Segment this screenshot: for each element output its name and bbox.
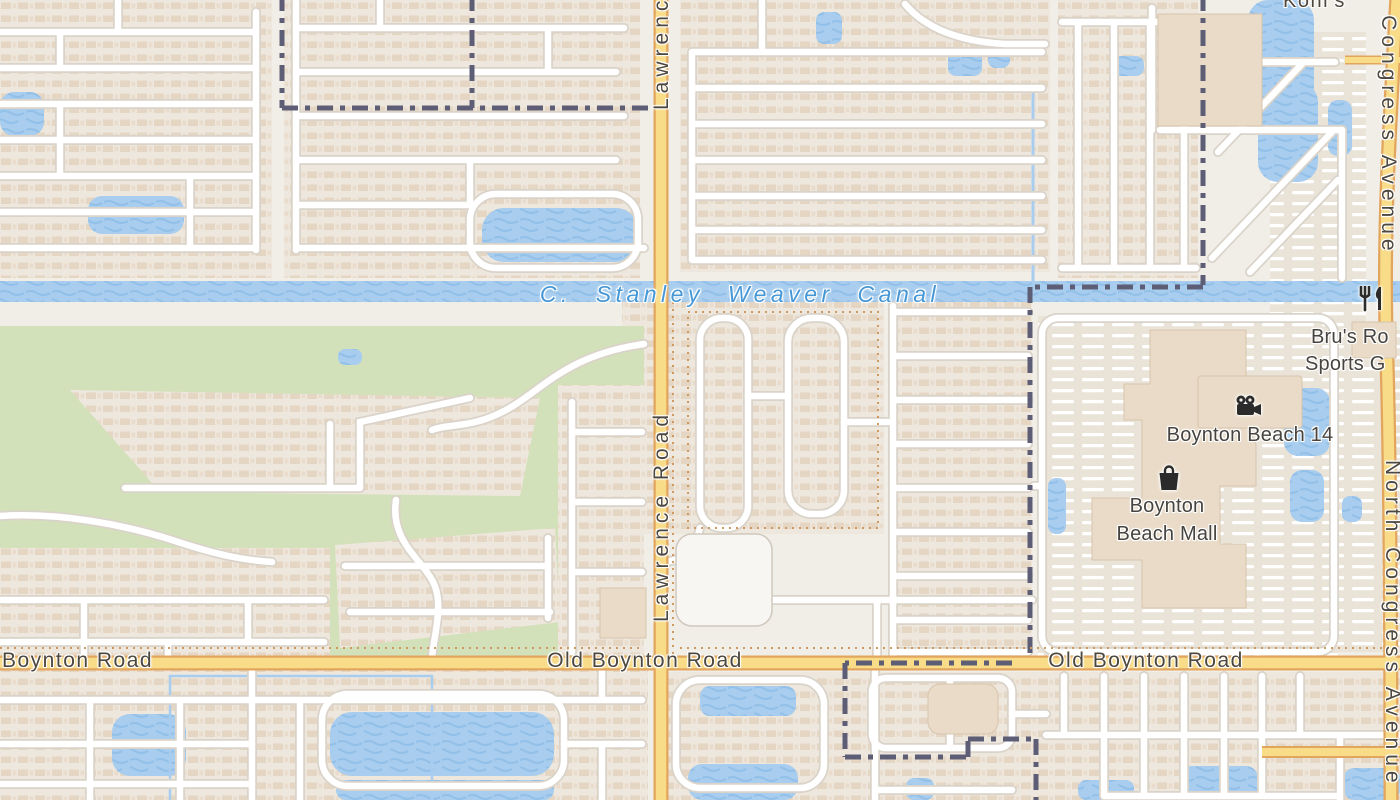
poi-mall-label[interactable]: Boynton Beach Mall <box>1117 492 1218 548</box>
cinema-icon[interactable] <box>1235 395 1263 417</box>
kohls-building <box>1158 14 1262 126</box>
map-canvas[interactable]: C. Stanley Weaver Canal Lawrence Road La… <box>0 0 1400 800</box>
plaza-building <box>676 534 772 626</box>
poi-cinema-label[interactable]: Boynton Beach 14 <box>1167 424 1334 447</box>
restaurant-icon[interactable] <box>1358 286 1386 312</box>
poi-mall-label-line2: Beach Mall <box>1117 520 1218 548</box>
canal-label: C. Stanley Weaver Canal <box>540 281 940 308</box>
poi-brus-label-line1[interactable]: Bru's Ro <box>1311 326 1389 349</box>
poi-mall-label-line1: Boynton <box>1117 492 1218 520</box>
map-tile-layer <box>0 0 1400 800</box>
shopping-bag-icon[interactable] <box>1156 464 1182 492</box>
poi-brus-label-line2[interactable]: Sports G <box>1305 353 1386 376</box>
